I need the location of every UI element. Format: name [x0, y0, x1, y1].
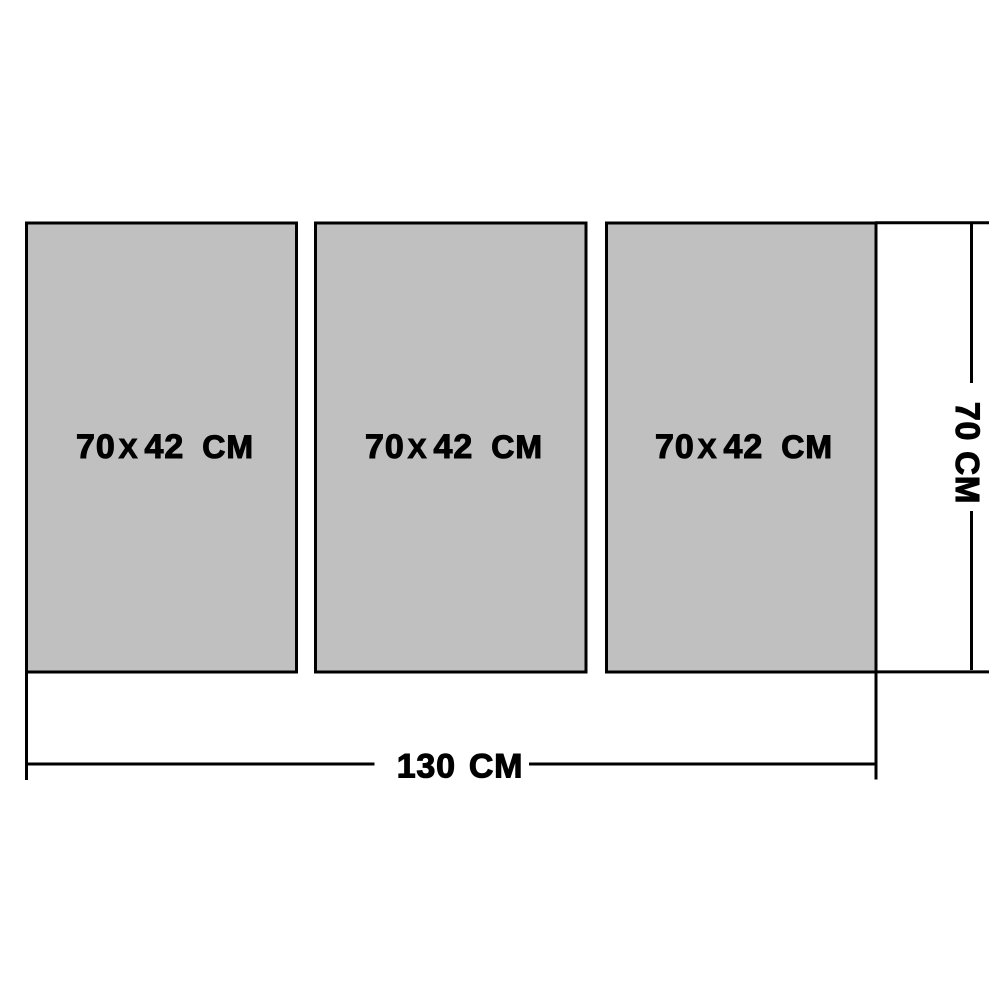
svg-text:70X42CM: 70X42CM [655, 428, 833, 466]
svg-text:70CM: 70CM [948, 402, 986, 504]
svg-text:70X42CM: 70X42CM [76, 428, 254, 466]
svg-text:70X42CM: 70X42CM [365, 428, 543, 466]
